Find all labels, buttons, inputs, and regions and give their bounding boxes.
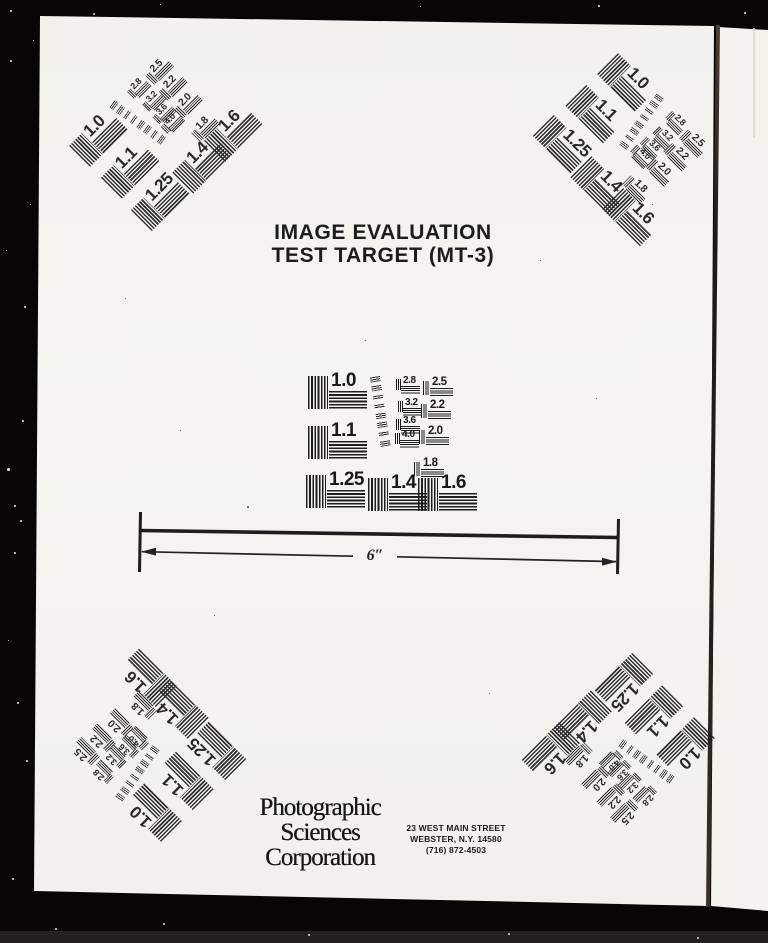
stripe-block-vertical bbox=[423, 381, 430, 395]
micro-tick bbox=[625, 745, 634, 755]
micro-tick bbox=[377, 422, 388, 428]
micro-tick bbox=[115, 793, 125, 802]
micro-tick bbox=[639, 754, 648, 764]
resolution-number: 2.8 bbox=[403, 376, 416, 386]
scanned-test-target-page: 1.01.11.251.41.62.52.22.01.82.83.23.64.0… bbox=[0, 0, 768, 943]
micro-tick bbox=[145, 752, 155, 761]
scale-right-tick bbox=[618, 519, 619, 574]
micro-tick bbox=[373, 394, 384, 400]
micro-tick bbox=[376, 413, 387, 419]
dust-speck bbox=[14, 552, 16, 554]
dust-speck bbox=[10, 10, 12, 12]
resolution-number: 1.4 bbox=[391, 473, 416, 492]
ink-speck bbox=[489, 693, 490, 694]
ink-speck bbox=[180, 430, 181, 431]
dust-speck bbox=[12, 878, 14, 880]
micro-tick bbox=[646, 759, 655, 769]
scan-scratch bbox=[753, 28, 755, 138]
title-line-1: IMAGE EVALUATION bbox=[232, 221, 534, 244]
publisher-line-3: Corporation bbox=[231, 845, 409, 870]
ink-speck bbox=[247, 506, 249, 508]
micro-tick bbox=[649, 100, 659, 109]
stripe-block-horizontal bbox=[428, 411, 451, 420]
resolution-number: 1.6 bbox=[441, 473, 466, 492]
dust-speck bbox=[160, 4, 161, 5]
dust-speck bbox=[55, 928, 57, 930]
resolution-number: 1.25 bbox=[329, 470, 364, 489]
publisher-wordmark: Photographic Sciences Corporation bbox=[231, 795, 409, 870]
resolution-number: 2.2 bbox=[430, 400, 445, 412]
micro-tick bbox=[137, 120, 146, 130]
resolution-number: 1.1 bbox=[331, 421, 356, 440]
micro-tick bbox=[109, 100, 118, 110]
micro-tick bbox=[666, 774, 675, 784]
dust-speck bbox=[508, 933, 510, 935]
stripe-block-horizontal bbox=[401, 386, 420, 394]
stripe-block-horizontal bbox=[329, 441, 367, 459]
micro-tick bbox=[157, 135, 166, 145]
ink-speck bbox=[125, 298, 126, 299]
micro-tick bbox=[130, 115, 139, 125]
ink-speck bbox=[365, 340, 366, 341]
scale-arrow-line-right bbox=[397, 557, 616, 562]
ink-speck bbox=[540, 260, 541, 261]
scale-arrow-line-left bbox=[142, 552, 353, 557]
stripe-block-horizontal bbox=[430, 388, 453, 397]
dust-speck bbox=[14, 505, 16, 507]
resolution-number: 1.0 bbox=[331, 371, 356, 390]
resolution-number: 4.0 bbox=[402, 430, 415, 440]
micro-tick bbox=[135, 766, 145, 775]
stripe-block-horizontal bbox=[329, 391, 367, 409]
dust-speck bbox=[26, 760, 28, 762]
micro-resolution-column bbox=[370, 375, 396, 456]
resolution-number: 1.8 bbox=[423, 458, 438, 470]
resolution-number: 3.2 bbox=[405, 398, 418, 408]
micro-tick bbox=[654, 93, 664, 102]
scale-arrowhead-left bbox=[141, 548, 156, 556]
dust-speck bbox=[697, 937, 699, 939]
dust-speck bbox=[7, 468, 10, 471]
dust-speck bbox=[93, 13, 95, 15]
dust-speck bbox=[22, 420, 24, 422]
target-title: IMAGE EVALUATION TEST TARGET (MT-3) bbox=[232, 221, 534, 267]
stripe-block-horizontal bbox=[421, 469, 444, 478]
stripe-block-vertical bbox=[308, 376, 328, 409]
stripe-block-vertical bbox=[421, 404, 428, 418]
dust-speck bbox=[8, 640, 9, 641]
micro-tick bbox=[120, 786, 130, 795]
dust-speck bbox=[24, 306, 26, 308]
stripe-block-vertical bbox=[419, 430, 426, 444]
scale-arrowhead-right bbox=[602, 558, 617, 566]
micro-tick bbox=[644, 107, 654, 116]
micro-tick bbox=[374, 404, 385, 410]
ink-speck bbox=[214, 615, 215, 616]
micro-tick bbox=[140, 759, 150, 768]
micro-tick bbox=[620, 141, 630, 150]
test-pattern-center: 1.01.11.251.41.62.52.22.01.82.83.23.64.0 bbox=[303, 372, 473, 512]
stripe-block-horizontal bbox=[400, 440, 419, 448]
resolution-number: 2.0 bbox=[428, 426, 443, 438]
dust-speck bbox=[744, 12, 746, 14]
micro-tick bbox=[116, 105, 125, 115]
publisher-address: 23 WEST MAIN STREET WEBSTER, N.Y. 14580 … bbox=[405, 823, 507, 857]
dust-speck bbox=[6, 250, 7, 251]
micro-tick bbox=[143, 125, 152, 135]
address-line-2: WEBSTER, N.Y. 14580 bbox=[405, 834, 507, 845]
micro-tick bbox=[371, 385, 382, 391]
address-line-1: 23 WEST MAIN STREET bbox=[405, 823, 507, 834]
stripe-block-vertical bbox=[414, 462, 421, 476]
micro-tick bbox=[130, 773, 140, 782]
micro-tick bbox=[150, 746, 160, 755]
micro-tick bbox=[379, 431, 390, 437]
publisher-line-2: Sciences bbox=[231, 820, 409, 845]
micro-tick bbox=[652, 764, 661, 774]
title-line-2: TEST TARGET (MT-3) bbox=[232, 244, 534, 267]
micro-tick bbox=[639, 114, 649, 123]
dust-speck bbox=[33, 40, 34, 41]
dust-speck bbox=[598, 5, 600, 7]
micro-tick bbox=[150, 130, 159, 140]
micro-tick bbox=[619, 740, 628, 750]
micro-tick bbox=[659, 769, 668, 779]
scale-label: 6″ bbox=[367, 547, 384, 564]
dust-speck bbox=[20, 520, 22, 522]
ink-speck bbox=[596, 398, 597, 399]
publisher-line-1: Photographic bbox=[231, 795, 409, 820]
stripe-block-horizontal bbox=[426, 437, 449, 446]
micro-tick bbox=[625, 134, 635, 143]
micro-tick bbox=[125, 779, 135, 788]
dust-speck bbox=[17, 702, 19, 704]
dust-speck bbox=[308, 934, 310, 936]
address-line-3: (716) 872-4503 bbox=[405, 845, 507, 856]
dust-speck bbox=[420, 6, 421, 7]
micro-tick bbox=[632, 749, 641, 759]
six-inch-scale: 6″ bbox=[110, 494, 650, 584]
micro-tick bbox=[370, 376, 381, 382]
resolution-number: 3.6 bbox=[403, 416, 416, 426]
film-edge-band bbox=[0, 931, 768, 943]
micro-tick bbox=[634, 121, 644, 130]
scale-left-tick bbox=[140, 512, 141, 572]
micro-tick bbox=[123, 110, 132, 120]
dust-speck bbox=[10, 60, 12, 62]
resolution-number: 2.5 bbox=[432, 377, 447, 389]
micro-tick bbox=[380, 440, 391, 446]
stripe-block-vertical bbox=[308, 426, 328, 459]
ink-speck bbox=[652, 204, 653, 205]
micro-tick bbox=[629, 127, 639, 136]
dust-speck bbox=[163, 923, 165, 925]
dust-speck bbox=[30, 204, 31, 205]
scale-bar-line bbox=[140, 531, 618, 538]
